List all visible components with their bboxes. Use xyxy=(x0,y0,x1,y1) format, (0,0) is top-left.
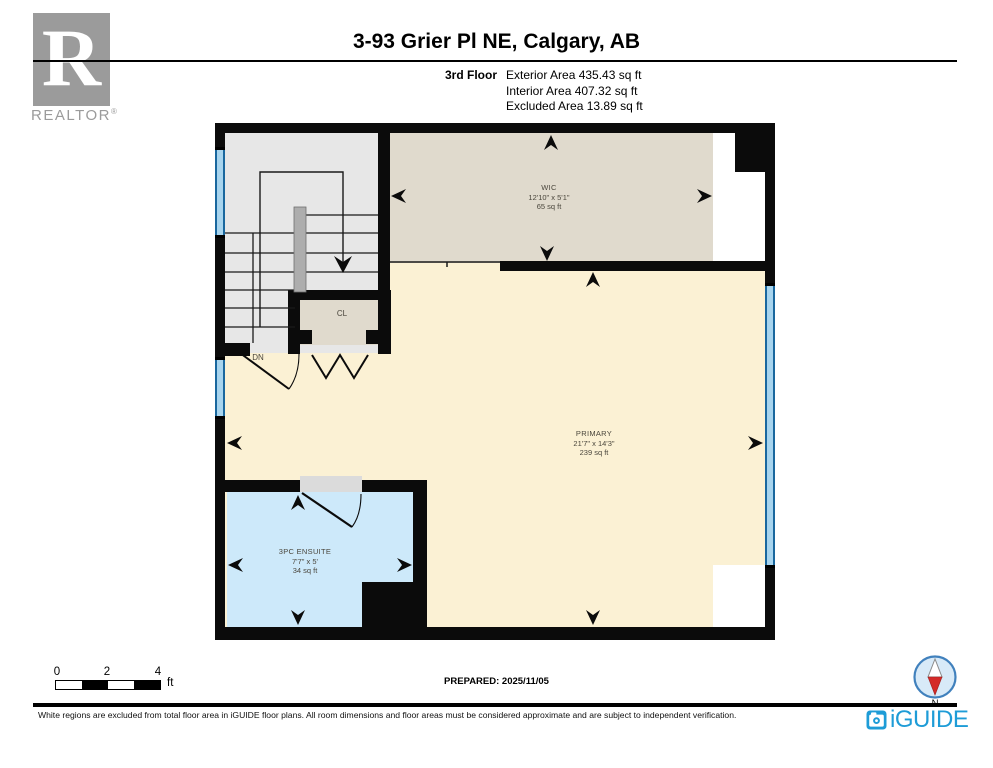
wall-closet-stub-right xyxy=(366,330,391,344)
iguide-icon xyxy=(866,710,887,730)
floor-plan: WIC 12'10" x 5'1" 65 sq ft PRIMARY 21'7"… xyxy=(215,123,775,640)
wic-area: 65 sq ft xyxy=(479,202,619,212)
excluded-area: Excluded Area 13.89 sq ft xyxy=(506,99,643,115)
wall-bottom xyxy=(215,627,775,640)
wall-closet-top xyxy=(288,290,391,300)
scale-unit: ft xyxy=(167,677,173,689)
page-title: 3-93 Grier Pl NE, Calgary, AB xyxy=(0,30,993,54)
excluded-region-bottom xyxy=(713,565,765,627)
ensuite-label: 3PC ENSUITE 7'7" x 5' 34 sq ft xyxy=(235,547,375,576)
wall-ensuite-block xyxy=(362,582,427,627)
scale-tick-0: 0 xyxy=(54,666,60,678)
floor-plan-page: R REALTOR® 3-93 Grier Pl NE, Calgary, AB… xyxy=(0,0,993,768)
wall-block-top-right xyxy=(735,133,765,172)
wic-label: WIC 12'10" x 5'1" 65 sq ft xyxy=(479,183,619,212)
interior-area: Interior Area 407.32 sq ft xyxy=(506,84,643,100)
wall-ensuite-right xyxy=(413,492,427,586)
footer-divider xyxy=(33,703,957,707)
wic-dimensions: 12'10" x 5'1" xyxy=(479,193,619,203)
header-divider xyxy=(33,60,957,62)
wall-top xyxy=(215,123,775,133)
scale-tick-4: 4 xyxy=(155,666,161,678)
window-stairwell xyxy=(215,147,225,238)
scale-tick-2: 2 xyxy=(104,666,110,678)
scale-bar: 0 2 4 ft xyxy=(55,666,235,692)
wall-wic-bottom xyxy=(500,261,765,271)
disclaimer-text: White regions are excluded from total fl… xyxy=(38,710,778,720)
door-threshold xyxy=(300,476,362,492)
exterior-area: Exterior Area 435.43 sq ft xyxy=(506,68,643,84)
ensuite-dimensions: 7'7" x 5' xyxy=(235,557,375,567)
wall-closet-stub-left xyxy=(288,330,312,344)
ensuite-area: 34 sq ft xyxy=(235,566,375,576)
area-summary: Exterior Area 435.43 sq ft Interior Area… xyxy=(506,68,643,115)
compass-icon: N xyxy=(907,650,963,708)
window-primary-right xyxy=(765,283,775,568)
window-primary-left xyxy=(215,357,225,419)
closet-label: CL xyxy=(312,309,372,318)
primary-dimensions: 21'7" x 14'3" xyxy=(524,439,664,449)
stairs-down-label: DN xyxy=(236,353,280,362)
iguide-wordmark: iGUIDE xyxy=(890,706,968,734)
wall-stair-divider xyxy=(378,133,390,290)
registered-mark: ® xyxy=(111,107,118,116)
scale-bar-segments xyxy=(55,680,161,690)
realtor-wordmark: REALTOR® xyxy=(31,107,118,124)
realtor-r-icon: R xyxy=(42,17,101,99)
primary-area: 239 sq ft xyxy=(524,448,664,458)
prepared-date: PREPARED: 2025/11/05 xyxy=(350,676,643,687)
iguide-logo: iGUIDE xyxy=(866,706,968,734)
wall-ensuite-top-left xyxy=(215,480,300,492)
wall-closet-left xyxy=(288,300,300,354)
wall-ensuite-top-right xyxy=(362,480,427,492)
wall-closet-right xyxy=(378,300,391,354)
primary-label: PRIMARY 21'7" x 14'3" 239 sq ft xyxy=(524,429,664,458)
